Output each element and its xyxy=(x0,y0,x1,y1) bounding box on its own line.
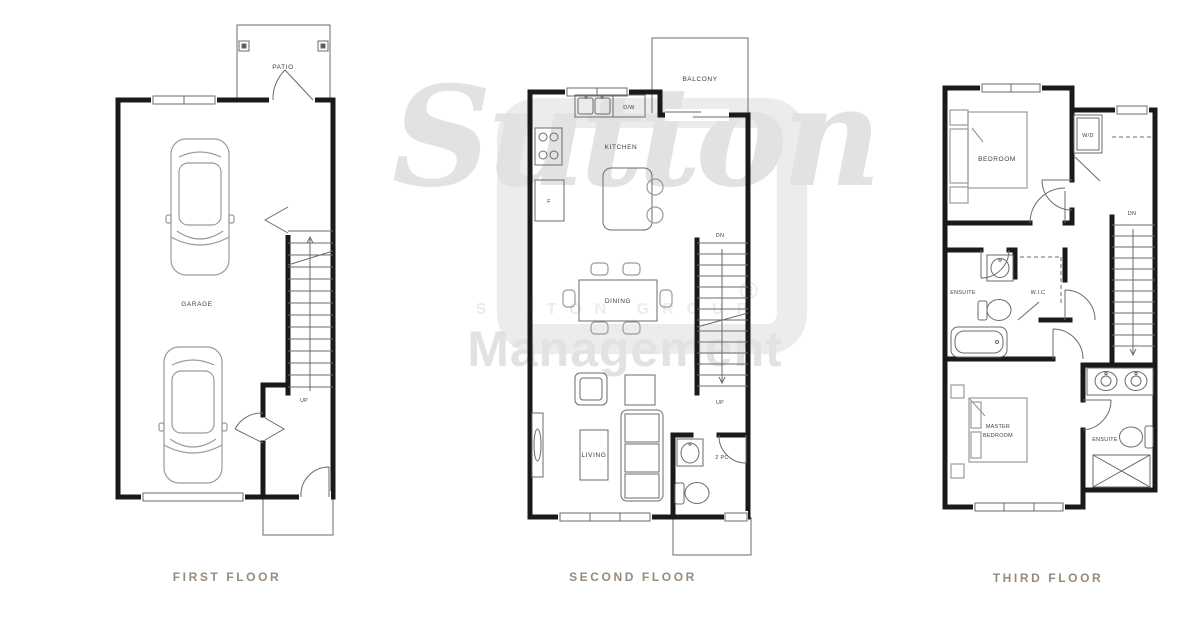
third-floor-plan: BEDROOM W/D DN ENSUITE W.I.C MASTER BEDR… xyxy=(925,65,1175,535)
stairs-label-down: DN xyxy=(716,233,724,239)
room-label-living: LIVING xyxy=(582,452,607,459)
media-console-icon xyxy=(532,413,543,477)
bathtub-icon xyxy=(951,327,1007,357)
room-label-master-ensuite: ENSUITE xyxy=(1092,437,1118,443)
stove-icon xyxy=(535,128,562,165)
car-icon xyxy=(159,347,227,483)
stairs-down-up xyxy=(697,243,748,386)
stairs-up xyxy=(288,231,333,391)
bedroom-door-arc xyxy=(1042,180,1072,210)
second-floor-plan: BALCONY KITCHEN D/W F DINING DN UP LIVIN… xyxy=(515,25,765,565)
label-dishwasher: D/W xyxy=(623,105,635,111)
powder-sink-icon xyxy=(677,439,703,466)
stairs-label-down: DN xyxy=(1128,211,1136,217)
armchair-icon xyxy=(575,373,607,405)
toilet-icon xyxy=(978,300,1011,321)
bath-window xyxy=(724,511,748,523)
balcony-slider-door xyxy=(665,109,729,121)
toilet-icon xyxy=(1120,426,1154,448)
room-label-powder: 2 PC xyxy=(715,455,728,461)
car-icon xyxy=(166,139,234,275)
first-floor-walls xyxy=(118,100,333,497)
room-label-wic: W.I.C xyxy=(1031,290,1046,296)
bottom-window xyxy=(973,501,1065,513)
patio-outline xyxy=(237,25,330,98)
stairs-label-up: UP xyxy=(716,400,724,406)
floorplan-page: Sutton ® SUTTON GROUP Management xyxy=(0,0,1200,626)
ensuite-door-arc xyxy=(981,250,1009,278)
stairs-label-up: UP xyxy=(300,398,308,404)
room-label-ensuite: ENSUITE xyxy=(950,290,976,296)
first-floor-plan: PATIO GARAGE UP xyxy=(105,15,345,575)
wic-shelving-dashed xyxy=(1020,257,1061,305)
shower-icon xyxy=(1093,455,1150,487)
room-label-garage: GARAGE xyxy=(181,301,212,308)
closet-bifold-doors xyxy=(265,418,284,440)
entry-door-arc xyxy=(299,467,331,503)
second-floor-title: SECOND FLOOR xyxy=(569,570,697,584)
wic-door xyxy=(1018,302,1039,320)
room-label-master-2: BEDROOM xyxy=(983,433,1013,439)
patio-door-arc xyxy=(269,70,315,106)
garage-door-opening xyxy=(141,491,245,503)
bottom-window xyxy=(558,511,652,523)
hall-door-arc xyxy=(1030,188,1065,223)
master-bed-icon xyxy=(951,385,1027,478)
room-label-bedroom: BEDROOM xyxy=(978,156,1016,163)
kitchen-sink-icon xyxy=(575,95,613,117)
stair-door-arc xyxy=(265,205,292,235)
double-vanity-icon xyxy=(1087,368,1153,395)
top-window xyxy=(980,82,1042,94)
ensuite-sink-icon xyxy=(987,255,1013,281)
first-floor-title: FIRST FLOOR xyxy=(173,570,282,584)
side-table-icon xyxy=(625,375,655,405)
garage-entry-door-arc xyxy=(235,413,263,443)
sofa-icon xyxy=(621,410,663,501)
label-washer-dryer: W/D xyxy=(1082,133,1093,139)
washer-dryer-door xyxy=(1075,157,1100,181)
master-door-arc xyxy=(1053,329,1083,359)
room-label-master-1: MASTER xyxy=(986,424,1010,430)
master-ensuite-door-arc xyxy=(1083,400,1111,430)
top-window xyxy=(151,94,217,106)
room-label-dining: DINING xyxy=(605,298,631,305)
room-label-kitchen: KITCHEN xyxy=(605,144,638,151)
third-floor-title: THIRD FLOOR xyxy=(993,571,1104,585)
toilet-icon xyxy=(675,483,709,505)
top-right-window xyxy=(1115,104,1149,116)
room-label-balcony: BALCONY xyxy=(682,76,717,83)
kitchen-island-icon xyxy=(603,168,663,230)
room-label-patio: PATIO xyxy=(272,64,294,71)
stairs-down xyxy=(1112,225,1155,355)
landing-door-arc xyxy=(1065,290,1095,320)
label-fridge: F xyxy=(547,199,551,205)
